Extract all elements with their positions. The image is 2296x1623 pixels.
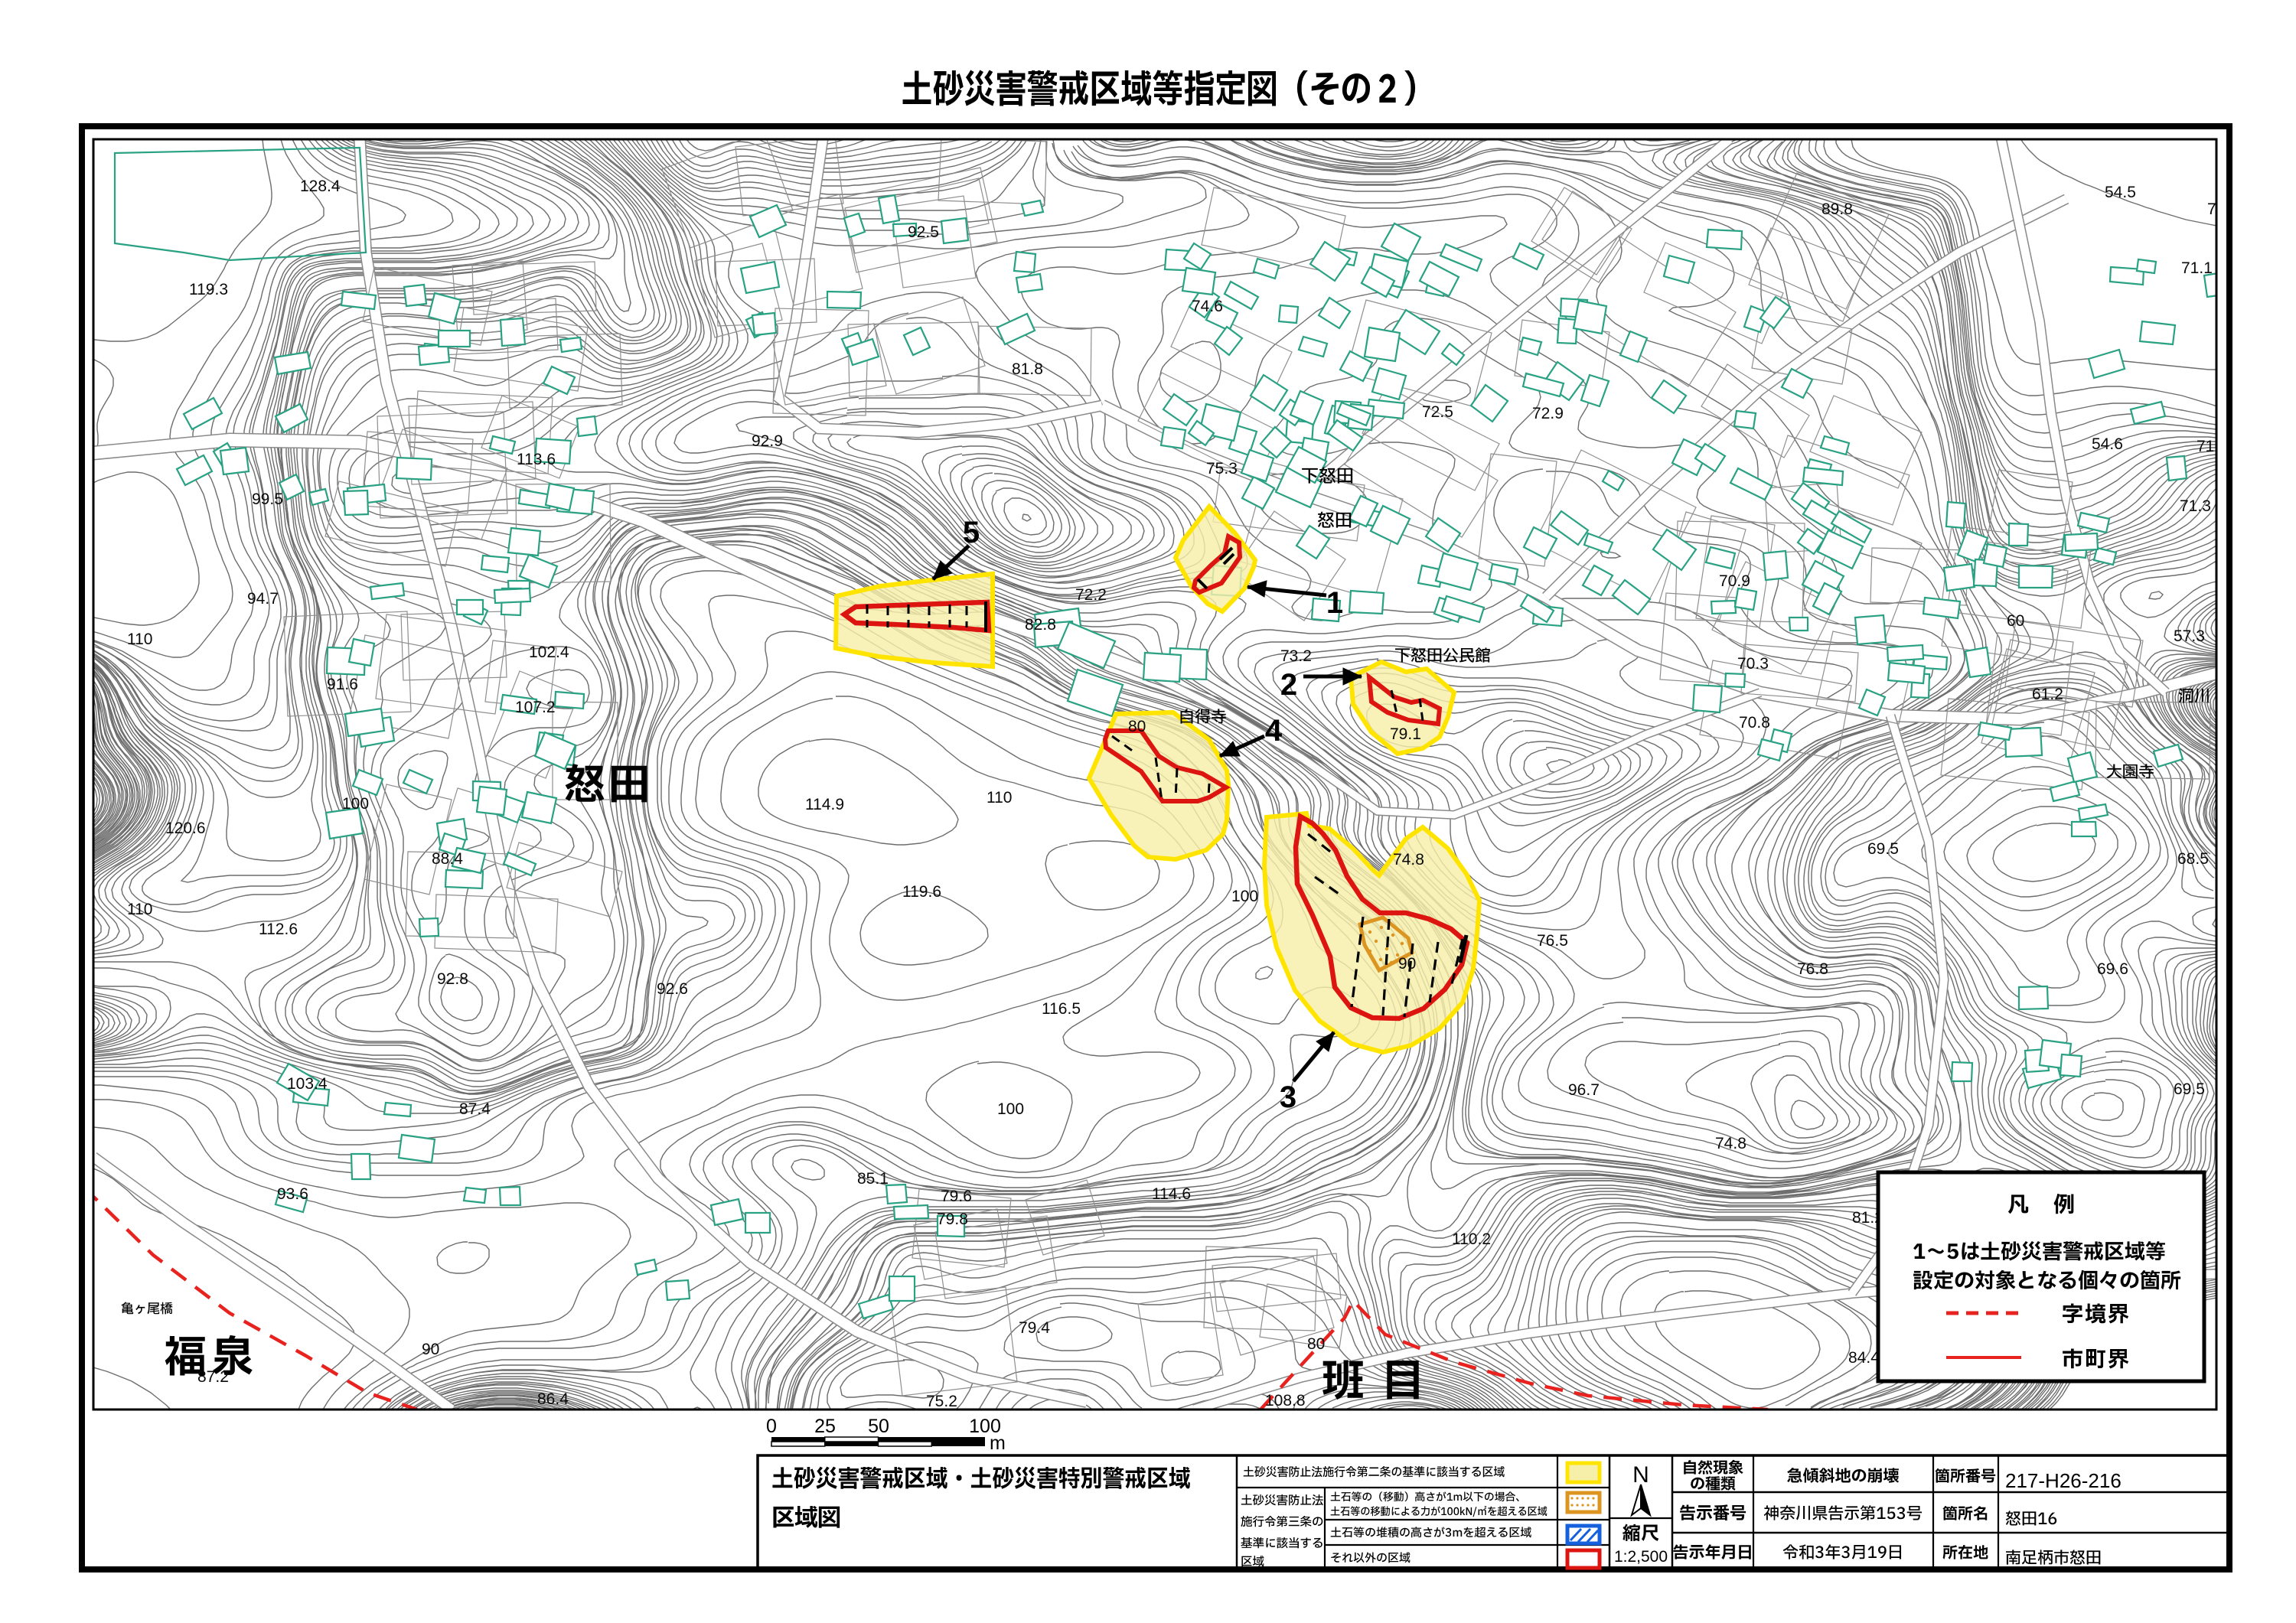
- svg-text:76.8: 76.8: [1797, 960, 1828, 978]
- svg-text:114.6: 114.6: [1152, 1185, 1191, 1203]
- svg-text:89.8: 89.8: [1821, 200, 1853, 218]
- svg-text:69.5: 69.5: [2174, 1080, 2205, 1098]
- svg-text:113.6: 113.6: [517, 451, 556, 468]
- svg-text:80: 80: [1128, 718, 1146, 735]
- svg-text:N: N: [1632, 1462, 1649, 1488]
- svg-text:110.2: 110.2: [1452, 1230, 1491, 1248]
- svg-text:100: 100: [1231, 888, 1258, 905]
- svg-text:217-H26-216: 217-H26-216: [2005, 1469, 2122, 1492]
- svg-text:100: 100: [997, 1100, 1024, 1118]
- svg-text:3: 3: [1280, 1080, 1296, 1114]
- svg-text:119.6: 119.6: [902, 883, 941, 901]
- svg-text:81.8: 81.8: [1012, 360, 1043, 378]
- svg-text:90: 90: [1398, 955, 1416, 973]
- svg-text:92.6: 92.6: [657, 980, 688, 998]
- svg-text:74.6: 74.6: [1192, 298, 1223, 315]
- svg-text:74.8: 74.8: [1393, 851, 1424, 869]
- svg-text:4: 4: [1265, 714, 1283, 748]
- svg-text:76.5: 76.5: [1537, 932, 1568, 950]
- svg-text:119.3: 119.3: [189, 281, 228, 298]
- svg-text:90: 90: [422, 1341, 439, 1358]
- svg-text:71.1: 71.1: [2181, 259, 2213, 277]
- svg-text:54.6: 54.6: [2092, 435, 2123, 453]
- svg-text:74.8: 74.8: [1715, 1135, 1746, 1152]
- svg-text:85.1: 85.1: [857, 1170, 889, 1188]
- svg-text:108.8: 108.8: [1265, 1392, 1306, 1410]
- svg-text:73.2: 73.2: [1280, 647, 1312, 665]
- svg-text:70.9: 70.9: [1719, 572, 1750, 590]
- svg-text:m: m: [990, 1432, 1006, 1454]
- svg-text:92.8: 92.8: [437, 970, 468, 988]
- svg-text:79.4: 79.4: [1019, 1319, 1050, 1337]
- svg-text:75.2: 75.2: [926, 1393, 957, 1410]
- svg-text:116.5: 116.5: [1042, 1000, 1081, 1018]
- svg-text:86.4: 86.4: [537, 1390, 569, 1408]
- svg-text:88.4: 88.4: [432, 850, 463, 868]
- svg-text:110: 110: [987, 789, 1012, 807]
- svg-text:71.3: 71.3: [2180, 497, 2211, 515]
- svg-text:110: 110: [127, 901, 152, 918]
- svg-text:128.4: 128.4: [300, 178, 341, 195]
- svg-text:2: 2: [1280, 668, 1297, 702]
- svg-text:82.8: 82.8: [1025, 616, 1056, 634]
- svg-text:80: 80: [1307, 1335, 1325, 1353]
- svg-text:120.6: 120.6: [165, 820, 206, 837]
- svg-text:94.7: 94.7: [247, 590, 279, 608]
- svg-text:61.2: 61.2: [2032, 686, 2063, 703]
- svg-text:110: 110: [127, 631, 152, 648]
- svg-text:70.3: 70.3: [1737, 655, 1769, 673]
- svg-text:103.4: 103.4: [287, 1075, 328, 1093]
- svg-text:70.8: 70.8: [1739, 714, 1770, 732]
- svg-text:92.9: 92.9: [752, 432, 783, 450]
- svg-text:5: 5: [963, 516, 980, 549]
- svg-text:100: 100: [342, 795, 369, 813]
- svg-text:1:2,500: 1:2,500: [1614, 1548, 1668, 1566]
- svg-text:68.5: 68.5: [2177, 850, 2209, 868]
- svg-text:93.6: 93.6: [277, 1185, 308, 1203]
- svg-text:79.6: 79.6: [941, 1188, 972, 1205]
- svg-text:75.3: 75.3: [1206, 460, 1238, 477]
- svg-text:96.7: 96.7: [1568, 1081, 1600, 1099]
- svg-text:72.2: 72.2: [1075, 586, 1107, 604]
- svg-text:1: 1: [1326, 586, 1343, 620]
- svg-text:79.8: 79.8: [937, 1211, 968, 1228]
- svg-text:25: 25: [814, 1416, 836, 1437]
- svg-text:79.1: 79.1: [1390, 725, 1421, 743]
- svg-text:57.3: 57.3: [2174, 627, 2205, 645]
- svg-text:60: 60: [2007, 612, 2024, 630]
- svg-text:112.6: 112.6: [259, 921, 298, 938]
- svg-text:107.2: 107.2: [515, 699, 556, 716]
- svg-text:87.2: 87.2: [197, 1368, 229, 1386]
- svg-text:69.5: 69.5: [1867, 840, 1899, 858]
- svg-text:72.9: 72.9: [1532, 405, 1564, 422]
- svg-text:84.4: 84.4: [1848, 1349, 1880, 1367]
- svg-text:50: 50: [868, 1416, 889, 1437]
- svg-text:87.4: 87.4: [459, 1100, 491, 1118]
- svg-text:0: 0: [766, 1416, 777, 1437]
- svg-text:102.4: 102.4: [529, 644, 569, 661]
- svg-text:114.9: 114.9: [805, 796, 844, 813]
- svg-text:72.5: 72.5: [1422, 403, 1453, 421]
- svg-text:92.5: 92.5: [908, 223, 939, 241]
- svg-text:54.5: 54.5: [2105, 184, 2136, 201]
- svg-text:91.6: 91.6: [327, 676, 358, 693]
- svg-text:99.5: 99.5: [252, 490, 283, 508]
- svg-text:69.6: 69.6: [2097, 960, 2128, 978]
